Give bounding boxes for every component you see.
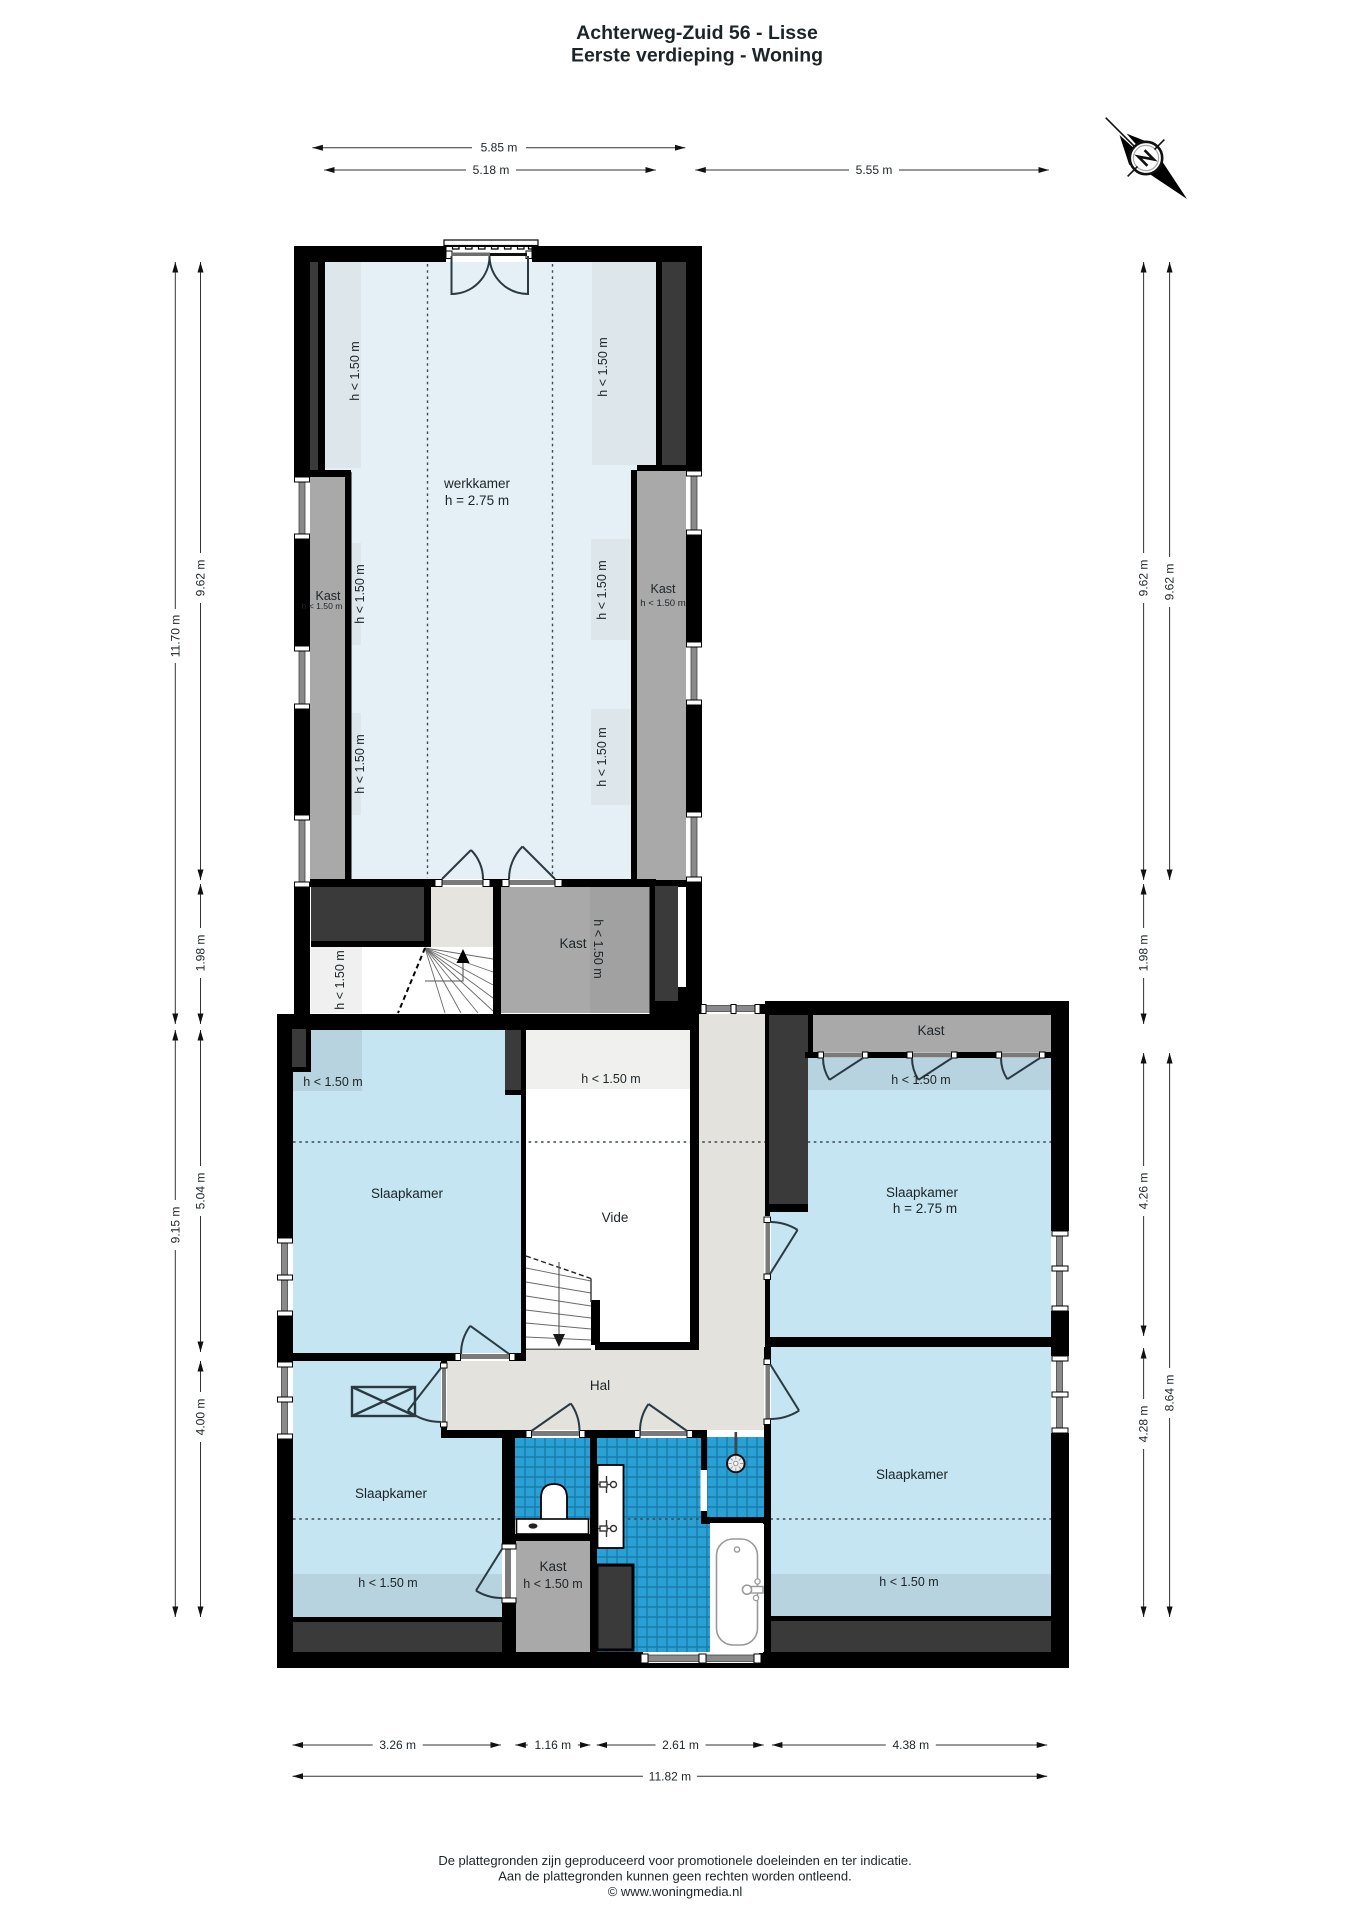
svg-text:Hal: Hal [590,1378,610,1393]
svg-text:h < 1.50 m: h < 1.50 m [591,919,605,978]
svg-text:Slaapkamer: Slaapkamer [876,1467,949,1482]
svg-text:Kast: Kast [539,1559,566,1574]
svg-text:h < 1.50 m: h < 1.50 m [581,1072,640,1086]
svg-text:9.15 m: 9.15 m [168,1207,182,1244]
svg-text:Slaapkamer: Slaapkamer [371,1186,444,1201]
svg-text:werkkamer: werkkamer [443,476,511,491]
svg-text:4.00 m: 4.00 m [194,1399,208,1436]
svg-text:h < 1.50 m: h < 1.50 m [303,1075,362,1089]
svg-text:Kast: Kast [559,936,586,951]
svg-text:Kast: Kast [917,1023,944,1038]
svg-text:11.82 m: 11.82 m [649,1769,691,1783]
svg-text:4.26 m: 4.26 m [1137,1173,1151,1210]
svg-text:5.04 m: 5.04 m [194,1173,208,1210]
svg-text:h < 1.50 m: h < 1.50 m [523,1577,582,1591]
svg-text:11.70 m: 11.70 m [168,615,182,657]
svg-text:De plattegronden zijn geproduc: De plattegronden zijn geproduceerd voor … [438,1853,911,1868]
svg-text:Eerste verdieping - Woning: Eerste verdieping - Woning [571,45,823,67]
svg-text:Slaapkamer: Slaapkamer [355,1486,428,1501]
svg-text:h < 1.50 m: h < 1.50 m [348,341,362,400]
svg-text:h < 1.50 m: h < 1.50 m [640,598,686,609]
svg-text:1.98 m: 1.98 m [194,935,208,972]
svg-text:9.62 m: 9.62 m [1137,560,1151,597]
svg-text:Achterweg-Zuid 56 - Lisse: Achterweg-Zuid 56 - Lisse [576,22,818,44]
svg-text:5.18 m: 5.18 m [473,163,510,177]
svg-text:Slaapkamer: Slaapkamer [886,1185,959,1200]
svg-text:Vide: Vide [602,1210,629,1225]
svg-text:h < 1.50 m: h < 1.50 m [891,1073,950,1087]
svg-text:h = 2.75 m: h = 2.75 m [445,493,509,508]
svg-text:h < 1.50 m: h < 1.50 m [879,1575,938,1589]
svg-text:8.64 m: 8.64 m [1163,1375,1177,1412]
svg-text:9.62 m: 9.62 m [1163,564,1177,601]
svg-text:h < 1.50 m: h < 1.50 m [353,564,367,623]
svg-text:h < 1.50 m: h < 1.50 m [333,950,347,1009]
svg-text:Aan de plattegronden kunnen ge: Aan de plattegronden kunnen geen rechten… [498,1869,851,1884]
svg-text:3.26 m: 3.26 m [379,1738,416,1752]
svg-text:9.62 m: 9.62 m [194,560,208,597]
svg-text:h = 2.75 m: h = 2.75 m [893,1201,957,1216]
svg-text:5.85 m: 5.85 m [481,141,518,155]
svg-text:h < 1.50 m: h < 1.50 m [595,727,609,786]
svg-text:h < 1.50 m: h < 1.50 m [353,734,367,793]
svg-text:h < 1.50 m: h < 1.50 m [595,560,609,619]
svg-text:2.61 m: 2.61 m [662,1738,699,1752]
svg-text:4.28 m: 4.28 m [1137,1406,1151,1443]
svg-text:1.98 m: 1.98 m [1137,935,1151,972]
svg-text:h < 1.50 m: h < 1.50 m [358,1576,417,1590]
svg-text:1.16 m: 1.16 m [534,1738,571,1752]
svg-text:5.55 m: 5.55 m [856,163,893,177]
svg-text:© www.woningmedia.nl: © www.woningmedia.nl [608,1884,743,1899]
svg-text:4.38 m: 4.38 m [892,1738,929,1752]
svg-text:Kast: Kast [650,582,676,596]
svg-text:h < 1.50 m: h < 1.50 m [596,337,610,396]
svg-text:h < 1.50 m: h < 1.50 m [302,601,343,611]
